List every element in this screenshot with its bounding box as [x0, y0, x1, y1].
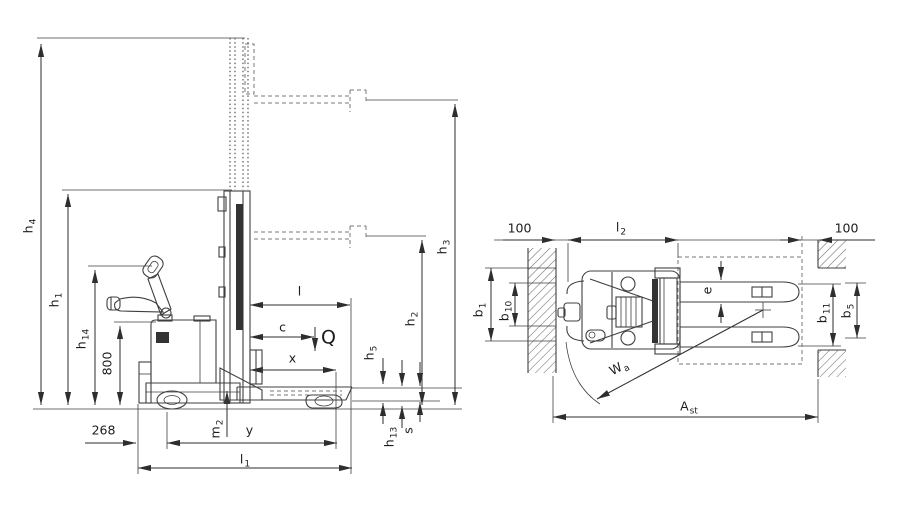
- dim-label-x: x: [289, 353, 297, 366]
- dim-label-e: e: [702, 286, 715, 295]
- dim-label-Ast: Ast: [680, 401, 698, 414]
- dim-label-100-left: 100: [508, 223, 533, 236]
- dim-label-l2: l2: [616, 222, 626, 235]
- dim-label-b1: b1: [473, 303, 486, 318]
- dim-label-s: s: [403, 426, 416, 434]
- dim-label-y: y: [246, 425, 254, 438]
- dim-label-b5: b5: [841, 304, 854, 319]
- top-view-drawing: [485, 236, 875, 423]
- side-view-drawing: [33, 38, 462, 474]
- dim-label-l: l: [298, 286, 302, 299]
- dim-label-Q: Q: [321, 329, 337, 348]
- dim-label-h13: h13: [384, 427, 397, 447]
- dim-label-h4: h4: [23, 219, 36, 234]
- dim-label-m2: m2: [210, 420, 223, 439]
- dim-label-100-right: 100: [835, 223, 860, 236]
- dim-label-h14: h14: [76, 329, 89, 349]
- dim-label-h2: h2: [405, 312, 418, 327]
- dim-label-268: 268: [92, 425, 117, 438]
- dim-label-l1: l1: [240, 454, 250, 467]
- stacker-dimension-diagram: h4 h1 h14 800 268 m2 y l1 l c Q x h5 h2 …: [0, 0, 900, 510]
- dim-label-h1: h1: [49, 293, 62, 308]
- dim-label-h3: h3: [437, 240, 450, 255]
- dim-label-c: c: [279, 322, 287, 335]
- dim-label-b11: b11: [817, 303, 830, 323]
- dim-label-b10: b10: [499, 301, 512, 321]
- dim-label-800: 800: [102, 351, 115, 376]
- diagram-canvas: [0, 0, 900, 510]
- dim-label-h5: h5: [364, 346, 377, 361]
